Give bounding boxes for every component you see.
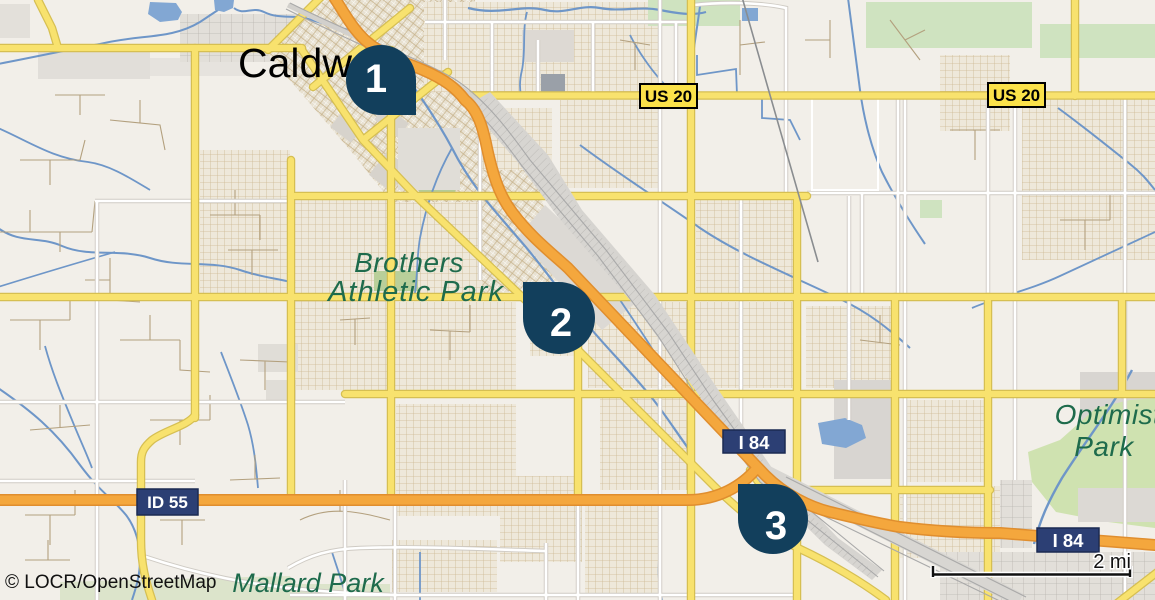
svg-text:Park: Park (1074, 431, 1135, 462)
svg-text:US 20: US 20 (993, 86, 1040, 105)
svg-text:© LOCR/OpenStreetMap: © LOCR/OpenStreetMap (5, 572, 216, 593)
svg-text:Mallard Park: Mallard Park (232, 568, 385, 598)
svg-text:Athletic Park: Athletic Park (326, 276, 504, 308)
svg-text:US 20: US 20 (645, 87, 692, 106)
svg-text:3: 3 (765, 504, 787, 548)
svg-text:ID 55: ID 55 (147, 493, 188, 512)
svg-text:1: 1 (365, 57, 387, 101)
svg-text:I 84: I 84 (739, 432, 771, 453)
svg-text:Optimist: Optimist (1055, 399, 1155, 430)
svg-text:2: 2 (550, 301, 572, 345)
svg-text:Brothers: Brothers (354, 247, 464, 278)
svg-text:2 mi: 2 mi (1093, 551, 1131, 573)
svg-text:I 84: I 84 (1053, 530, 1085, 551)
